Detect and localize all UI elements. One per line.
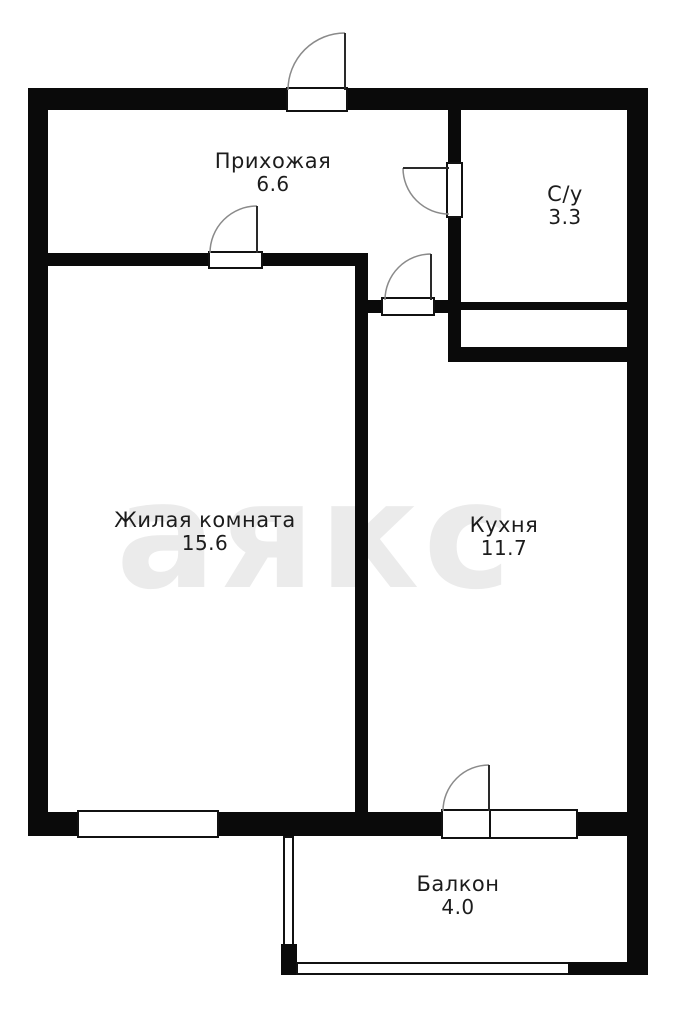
kitchen-door-arc — [385, 254, 431, 300]
room-area: 4.0 — [348, 896, 568, 919]
room-label-balcony: Балкон 4.0 — [348, 873, 568, 919]
room-label-bathroom: С/у 3.3 — [455, 183, 675, 229]
room-label-livingroom: Жилая комната 15.6 — [95, 509, 315, 555]
room-name: Прихожая — [163, 150, 383, 173]
room-label-kitchen: Кухня 11.7 — [394, 514, 614, 560]
room-name: С/у — [455, 183, 675, 206]
room-area: 11.7 — [394, 537, 614, 560]
room-name: Балкон — [348, 873, 568, 896]
room-area: 6.6 — [163, 173, 383, 196]
room-name: Жилая комната — [95, 509, 315, 532]
floorplan: аякс Прихожая — [0, 0, 681, 1032]
room-area: 3.3 — [455, 206, 675, 229]
livingroom-door-arc — [210, 206, 257, 253]
room-name: Кухня — [394, 514, 614, 537]
bathroom-door-arc — [403, 168, 449, 214]
room-area: 15.6 — [95, 532, 315, 555]
balcony-door-arc — [443, 765, 489, 811]
entrance-door-arc — [288, 33, 345, 90]
room-label-hallway: Прихожая 6.6 — [163, 150, 383, 196]
